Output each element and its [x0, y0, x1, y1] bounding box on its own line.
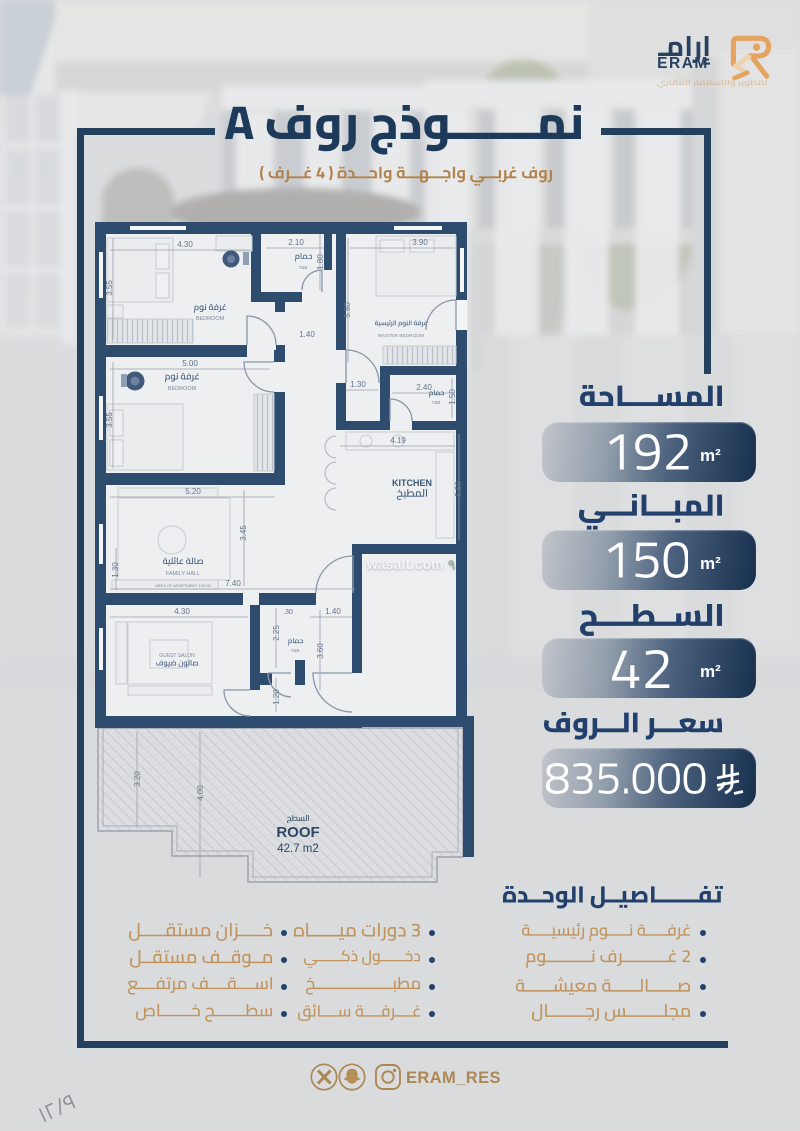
svg-text:T&B: T&B [432, 400, 441, 405]
svg-text:T&B: T&B [291, 648, 300, 653]
svg-text:3.45: 3.45 [239, 525, 248, 541]
svg-text:T&B: T&B [299, 265, 308, 270]
svg-text:7.40: 7.40 [225, 579, 241, 588]
svg-text:4.30: 4.30 [174, 607, 190, 616]
svg-text:3.20: 3.20 [133, 771, 142, 787]
svg-text:5.20: 5.20 [185, 487, 201, 496]
svg-text:5.80: 5.80 [343, 302, 352, 318]
svg-text:4.19: 4.19 [390, 436, 406, 445]
svg-text:5.00: 5.00 [182, 359, 198, 368]
svg-text:42.7 m2: 42.7 m2 [277, 843, 319, 855]
svg-text:BEDROOM: BEDROOM [168, 386, 197, 392]
svg-text:4.30: 4.30 [177, 240, 193, 249]
svg-text:1.50: 1.50 [448, 389, 457, 405]
svg-text:3.90: 3.90 [412, 238, 428, 247]
svg-text:2.10: 2.10 [288, 238, 304, 247]
svg-text:.30: .30 [283, 609, 293, 616]
svg-text:1.30: 1.30 [350, 380, 366, 389]
svg-text:1.40: 1.40 [325, 607, 341, 616]
svg-text:3.55: 3.55 [105, 280, 114, 296]
svg-text:GUEST SALON: GUEST SALON [159, 653, 195, 659]
svg-text:MASTER BEDROOM: MASTER BEDROOM [378, 333, 424, 339]
svg-text:1.20: 1.20 [272, 689, 281, 705]
svg-text:3.55: 3.55 [105, 412, 114, 428]
svg-text:AREA OF APARTMENT 150.00: AREA OF APARTMENT 150.00 [155, 583, 212, 588]
svg-text:1.40: 1.40 [299, 330, 315, 339]
svg-text:3.60: 3.60 [316, 643, 325, 659]
svg-text:1.80: 1.80 [316, 254, 325, 270]
svg-text:2.25: 2.25 [272, 625, 281, 641]
svg-text:5.50: 5.50 [454, 481, 463, 497]
svg-text:BEDROOM: BEDROOM [196, 316, 225, 322]
svg-text:4.00: 4.00 [196, 785, 205, 801]
svg-text:KITCHEN: KITCHEN [392, 478, 432, 488]
svg-text:FAMILY HALL: FAMILY HALL [166, 571, 200, 577]
svg-text:ROOF: ROOF [276, 824, 319, 841]
svg-text:1.30: 1.30 [111, 562, 120, 578]
